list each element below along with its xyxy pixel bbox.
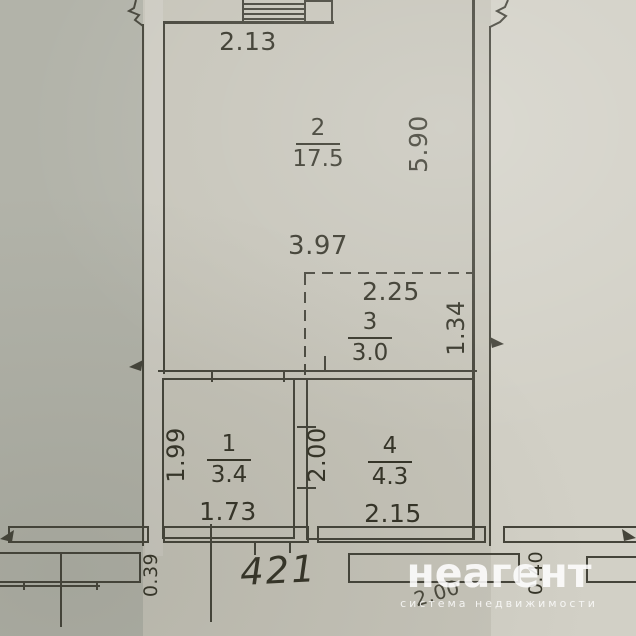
room3-label: 3 3.0: [346, 311, 394, 365]
room4-number: 4: [368, 435, 412, 463]
stair-landing-right: [331, 0, 333, 22]
balcony-left: [0, 552, 141, 583]
room4-area: 4.3: [364, 463, 416, 489]
room4-label: 4 4.3: [364, 435, 416, 489]
room3-number: 3: [348, 311, 392, 339]
watermark-brand: неагент: [398, 553, 600, 594]
dim-room4-width: 2.15: [359, 501, 427, 527]
bottom-wall-segment: [503, 526, 636, 543]
room1-number: 1: [207, 433, 251, 461]
dim-room2-depth: 5.90: [407, 114, 431, 174]
dim-balcony-left-width: 0.39: [139, 550, 163, 600]
stair-left-edge: [242, 0, 244, 22]
dimension-arrow-icon: [0, 529, 15, 544]
watermark-tagline: система недвижимости: [398, 597, 600, 610]
room3-dashed-top: [304, 272, 474, 274]
plan-number: 421: [239, 547, 318, 594]
left-outer-wall: [142, 24, 144, 546]
bottom-wall-segment: [317, 526, 486, 543]
right-outer-wall: [489, 26, 491, 546]
dim-room2-width: 3.97: [284, 233, 352, 260]
room2-number: 2: [296, 117, 340, 145]
dim-opening-width: 2.00: [305, 425, 329, 485]
extension-line: [210, 524, 212, 622]
dim-room3-depth: 1.34: [444, 298, 468, 358]
room1-label: 1 3.4: [203, 433, 255, 487]
paper-corridor-strip: [145, 0, 163, 556]
dim-room1-depth: 1.99: [164, 425, 188, 485]
wall-break-icon: [127, 0, 147, 27]
watermark: неагент система недвижимости: [398, 553, 600, 610]
dim-room3-width: 2.25: [356, 279, 426, 305]
section-line: [60, 553, 62, 627]
room3-area: 3.0: [346, 339, 394, 365]
room2-label: 2 17.5: [292, 117, 344, 171]
balcony-left-rail: [0, 585, 100, 587]
room3-dashed-left: [304, 274, 306, 376]
dimension-arrow-icon: [621, 528, 636, 543]
dimension-arrow-icon: [489, 335, 504, 350]
room1-area: 3.4: [203, 461, 255, 487]
floor-plan: 2.13 5.90 3.97 2.25 1.34 1.99 1.73 2.00 …: [0, 0, 636, 636]
room2-area: 17.5: [292, 145, 344, 171]
room2-left-wall: [163, 21, 165, 374]
stair-hatch-line: [243, 8, 305, 10]
stair-landing-top: [304, 0, 333, 2]
dim-room1-width: 1.73: [196, 499, 260, 525]
rail-tick: [23, 583, 25, 590]
bottom-wall-segment: [8, 526, 149, 543]
wall-break-icon: [487, 0, 511, 28]
rail-tick: [96, 583, 98, 590]
stair-hatch-line: [243, 18, 305, 20]
stair-hatch-line: [243, 3, 305, 5]
stair-right-edge: [304, 0, 306, 22]
middle-wall-stub: [324, 356, 326, 372]
dimension-arrow-icon: [129, 358, 144, 373]
stair-hatch-line: [243, 13, 305, 15]
door-opening-tick: [297, 487, 316, 489]
dim-stair-width: 2.13: [216, 29, 280, 55]
bottom-wall-segment: [163, 526, 309, 543]
middle-wall-upper: [158, 370, 477, 372]
top-wall: [163, 21, 334, 24]
